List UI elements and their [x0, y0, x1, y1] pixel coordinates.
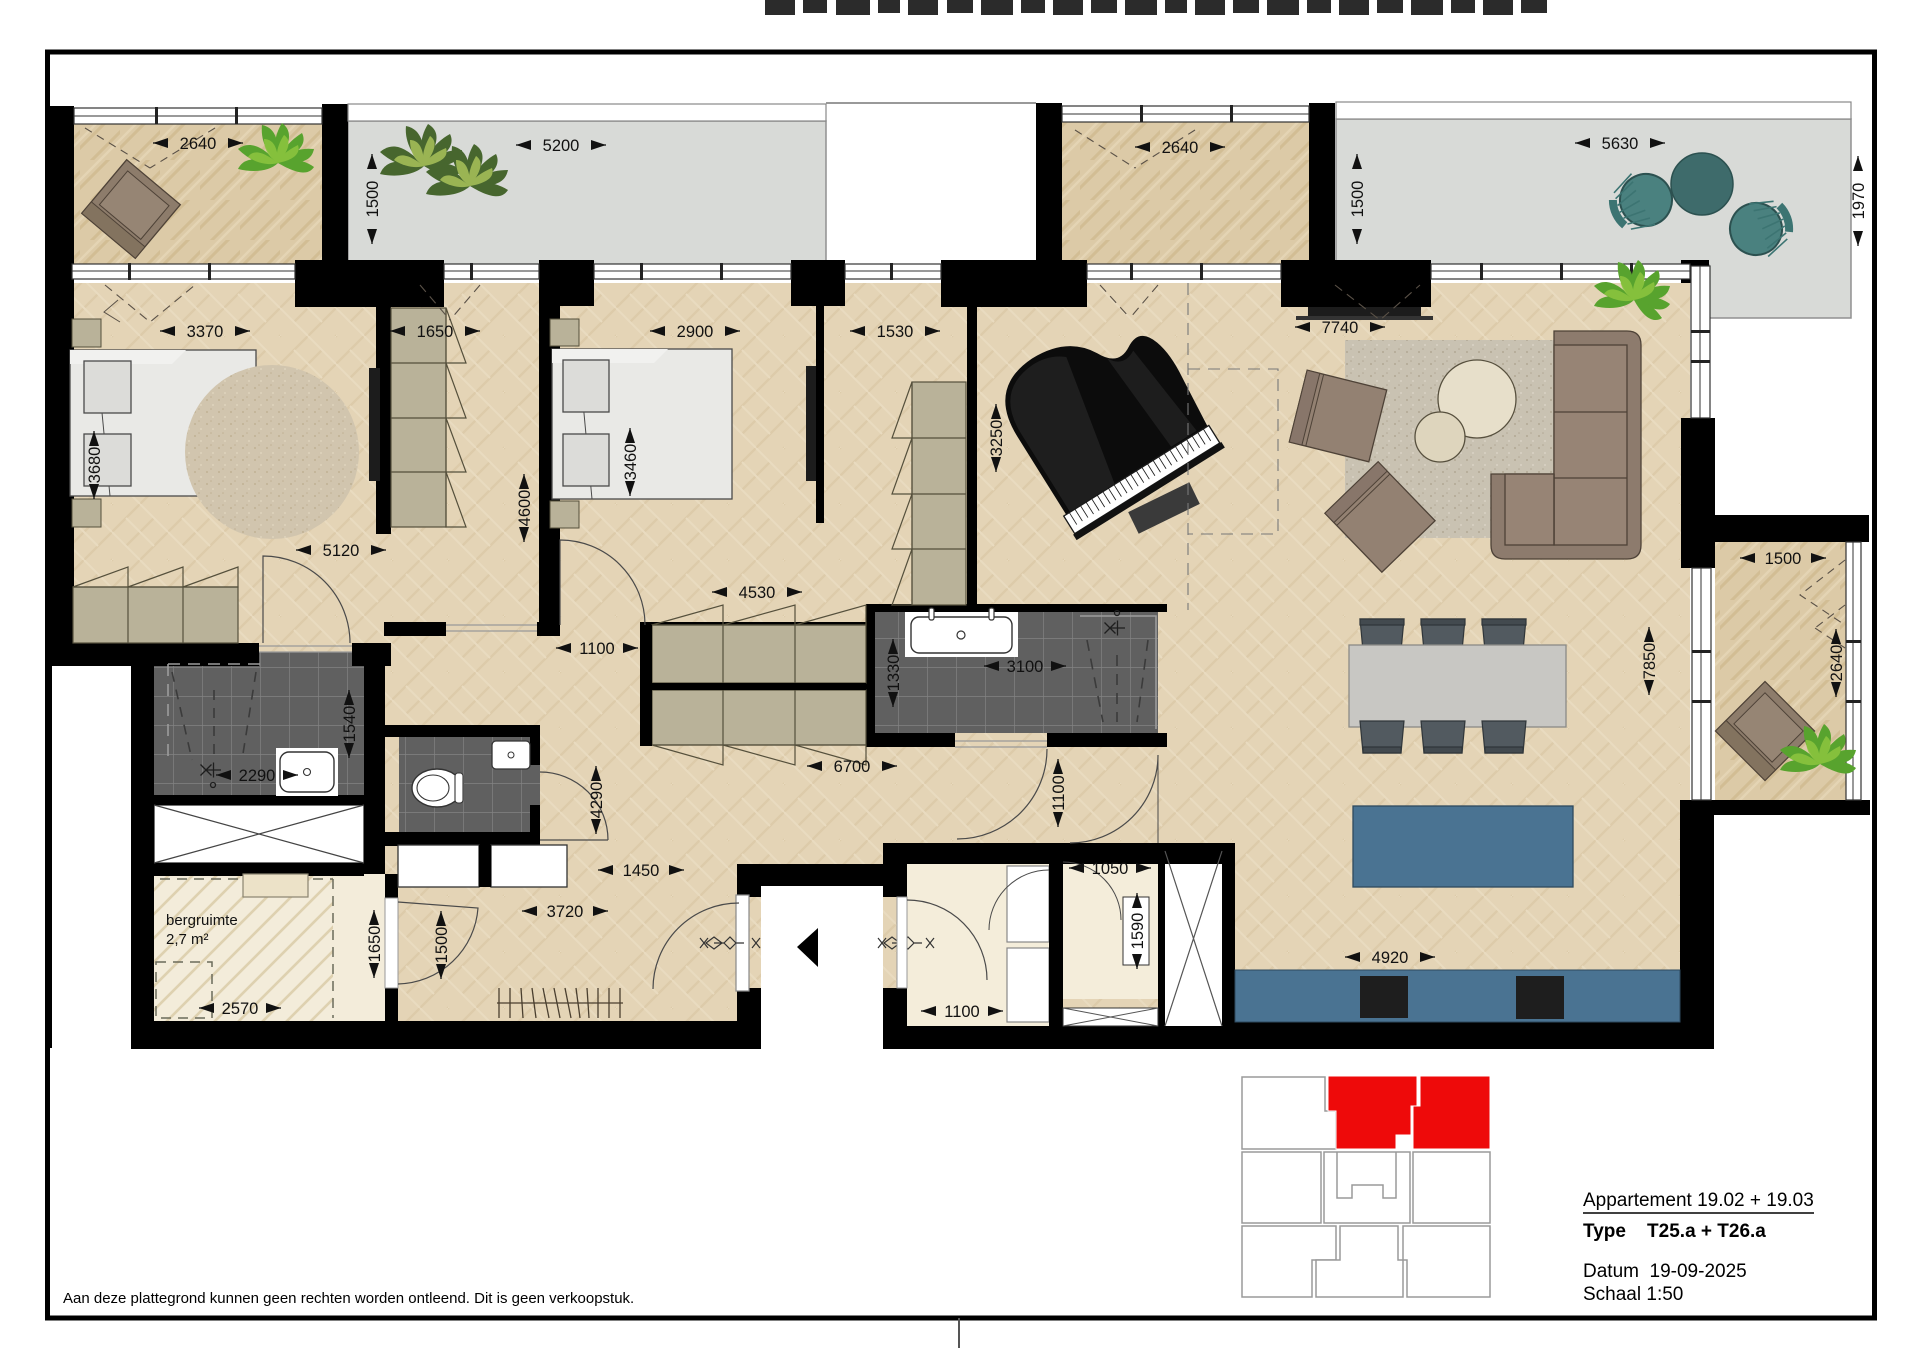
svg-text:1500: 1500 — [433, 927, 451, 964]
svg-text:1970: 1970 — [1850, 183, 1868, 220]
svg-text:4600: 4600 — [516, 490, 534, 527]
svg-text:4920: 4920 — [1372, 949, 1409, 967]
svg-text:5200: 5200 — [543, 137, 580, 155]
svg-text:6700: 6700 — [834, 758, 871, 776]
svg-text:2640: 2640 — [180, 135, 217, 153]
svg-text:2640: 2640 — [1828, 645, 1846, 682]
svg-text:4530: 4530 — [739, 584, 776, 602]
svg-text:7850: 7850 — [1641, 643, 1659, 680]
svg-text:1590: 1590 — [1129, 913, 1147, 950]
svg-text:1530: 1530 — [877, 323, 914, 341]
svg-text:7740: 7740 — [1322, 319, 1359, 337]
svg-text:3720: 3720 — [547, 903, 584, 921]
svg-text:2,7 m²: 2,7 m² — [166, 931, 209, 948]
svg-text:3370: 3370 — [187, 323, 224, 341]
svg-text:1500: 1500 — [1765, 550, 1802, 568]
svg-text:3100: 3100 — [1007, 658, 1044, 676]
svg-text:1450: 1450 — [623, 862, 660, 880]
svg-text:3250: 3250 — [988, 420, 1006, 457]
svg-text:1100: 1100 — [944, 1003, 979, 1021]
svg-text:1500: 1500 — [1349, 181, 1367, 218]
svg-text:bergruimte: bergruimte — [166, 912, 238, 929]
svg-text:2900: 2900 — [677, 323, 714, 341]
svg-text:4290: 4290 — [588, 782, 606, 819]
svg-text:3460: 3460 — [622, 444, 640, 481]
svg-text:1500: 1500 — [364, 181, 382, 218]
svg-text:Aan deze plattegrond kunnen ge: Aan deze plattegrond kunnen geen rechten… — [63, 1290, 634, 1307]
svg-text:1540: 1540 — [341, 706, 359, 743]
svg-text:5630: 5630 — [1602, 135, 1639, 153]
svg-text:2570: 2570 — [222, 1000, 259, 1018]
svg-text:1650: 1650 — [366, 926, 384, 963]
svg-text:Schaal 1:50: Schaal 1:50 — [1583, 1284, 1683, 1305]
svg-text:1050: 1050 — [1092, 860, 1129, 878]
svg-text:3680: 3680 — [86, 447, 104, 484]
svg-text:1650: 1650 — [417, 323, 454, 341]
svg-text:1100: 1100 — [579, 640, 614, 658]
svg-text:Type T25.a + T26.a: Type T25.a + T26.a — [1583, 1221, 1766, 1242]
svg-text:1330: 1330 — [885, 655, 903, 692]
svg-text:2290: 2290 — [239, 767, 276, 785]
svg-text:Appartement 19.02 + 19.03: Appartement 19.02 + 19.03 — [1583, 1190, 1814, 1211]
svg-text:2640: 2640 — [1162, 139, 1199, 157]
svg-text:Datum 19-09-2025: Datum 19-09-2025 — [1583, 1261, 1747, 1282]
svg-text:1100: 1100 — [1050, 775, 1068, 810]
svg-text:5120: 5120 — [323, 542, 360, 560]
